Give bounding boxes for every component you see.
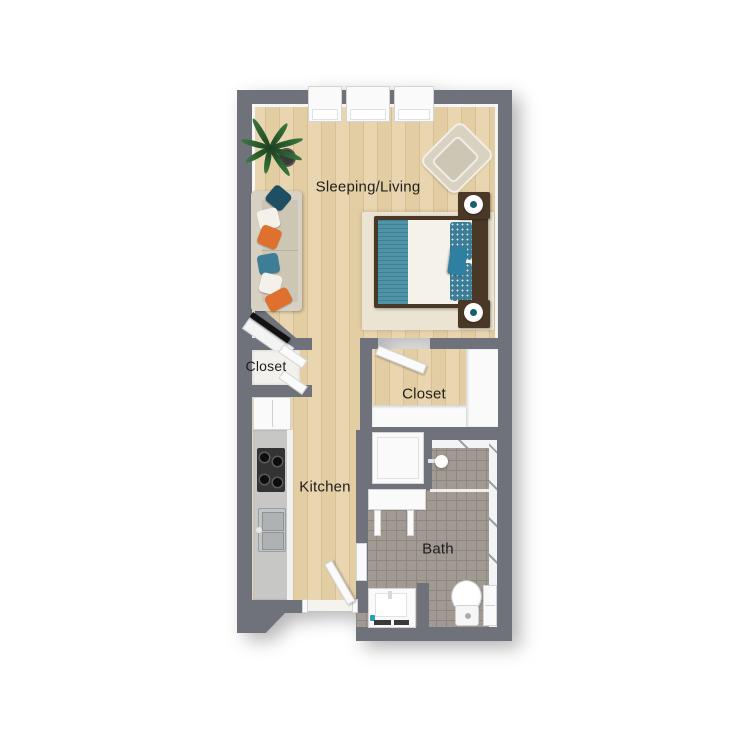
stove [257, 448, 285, 492]
washer-dryer-top [377, 437, 419, 479]
lamp-bottom [464, 303, 483, 322]
label-kitchen: Kitchen [299, 479, 350, 496]
console-table-leg-left [374, 510, 381, 536]
window-2-sill [350, 109, 386, 120]
sink-faucet [256, 527, 262, 533]
stove-burner [273, 478, 282, 487]
toilet-tank [455, 605, 479, 626]
vanity-sink [368, 588, 416, 628]
window-3-sill [398, 109, 430, 120]
shower-head [435, 455, 448, 468]
floor-plan-canvas: Sleeping/Living Closet Closet Kitchen Ba… [0, 0, 740, 740]
sofa-seam [262, 250, 298, 251]
entry-jamb-left [302, 599, 308, 613]
stove-burner [260, 453, 269, 462]
window-1-sill [312, 109, 338, 120]
stove-burner [260, 475, 269, 484]
label-closet-left: Closet [246, 358, 287, 374]
wall-left-step [237, 613, 285, 633]
wall-closet-mid-top-b [430, 338, 498, 349]
sink-basin-1 [262, 512, 284, 531]
bed-blanket [378, 220, 408, 304]
washer-dryer [372, 432, 424, 484]
bath-door [356, 543, 367, 581]
bath-cabinet [483, 585, 497, 626]
label-bath: Bath [422, 541, 454, 558]
vanity-drawer-dark-2 [394, 620, 409, 625]
vanity-faucet [388, 591, 392, 599]
plant [267, 128, 307, 174]
kitchen-sink [258, 508, 286, 552]
wall-left [237, 90, 252, 613]
window-2 [346, 86, 390, 122]
kitchen-cabinet-front [287, 430, 293, 600]
window-3 [394, 86, 434, 122]
label-closet-middle: Closet [402, 386, 446, 403]
shower-wall-face-top [432, 440, 489, 448]
stove-burner [273, 457, 282, 466]
wall-right [497, 90, 512, 641]
lamp-top [464, 195, 483, 214]
sofa-pillow-blue [256, 252, 280, 275]
wall-bath-bottom [356, 627, 512, 641]
wall-bath-top [430, 427, 498, 440]
fridge-split [272, 400, 273, 427]
lamp-top-finial [470, 201, 477, 208]
console-table-top [368, 489, 426, 510]
closet-mid-shelf-right [466, 349, 498, 427]
sink-basin-2 [262, 532, 284, 550]
wall-face-right [495, 104, 498, 338]
fridge [253, 397, 291, 430]
wall-vanity-divider [417, 583, 429, 627]
vanity-drawer-dark-1 [374, 620, 391, 625]
bath-cabinet-split [485, 605, 495, 606]
label-sleeping-living: Sleeping/Living [316, 179, 421, 196]
wall-kitchen-bottom [237, 600, 305, 613]
wall-closet-mid-left [360, 338, 372, 430]
lamp-bottom-finial [470, 309, 477, 316]
console-table-leg-right [407, 510, 414, 536]
window-1 [308, 86, 342, 122]
toilet-flush-button [465, 613, 471, 619]
floor-plan: Sleeping/Living Closet Closet Kitchen Ba… [0, 0, 740, 740]
wall-closet-mid-top-a [360, 338, 378, 349]
shower-glass-line [430, 489, 490, 492]
